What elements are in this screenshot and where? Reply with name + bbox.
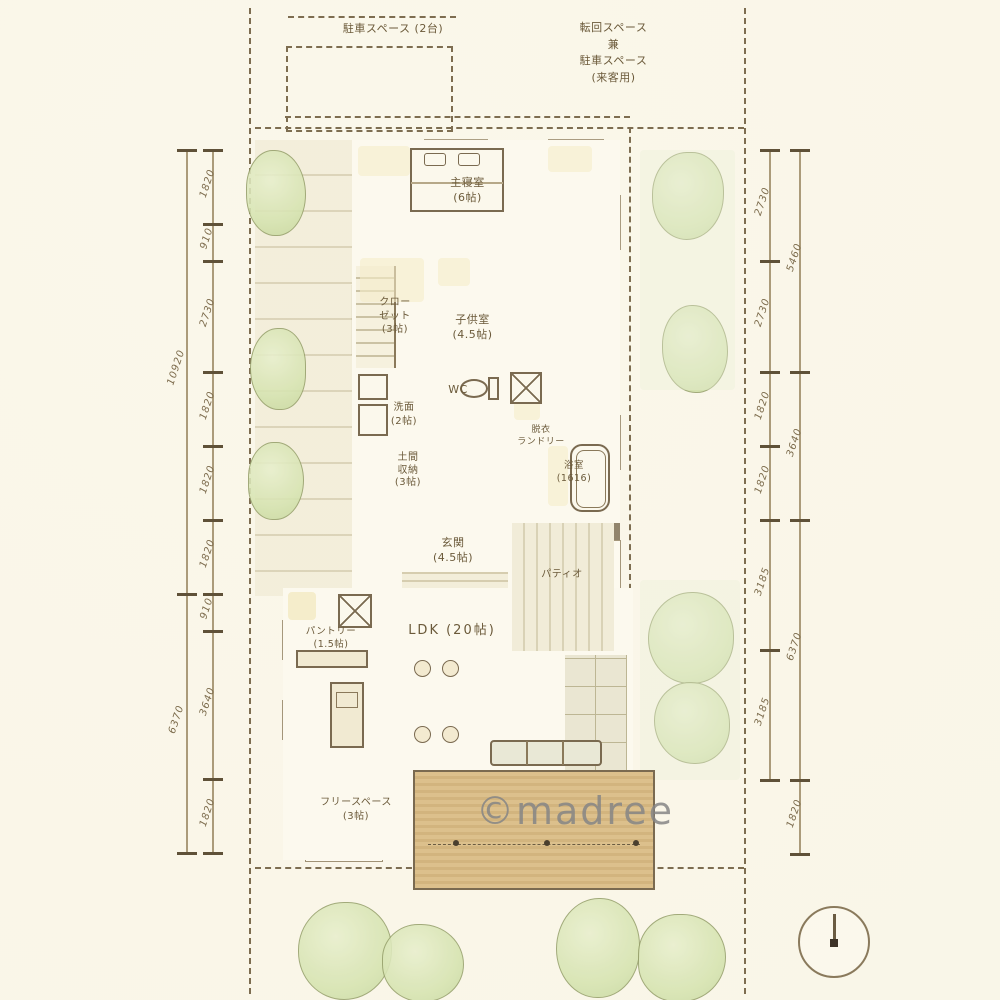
dim-tick [760, 445, 780, 448]
dim-tick [203, 445, 223, 448]
chair [442, 726, 459, 743]
chair [414, 726, 431, 743]
dim-label: 1820 [198, 538, 218, 569]
site-boundary-right [744, 8, 746, 994]
dim-label: 1820 [198, 168, 218, 199]
wash [438, 258, 470, 286]
dim-label: 2730 [198, 297, 218, 328]
dim-tick [760, 371, 780, 374]
pillow [458, 153, 480, 166]
deck-post-dot [453, 840, 459, 846]
washing-machine [510, 372, 542, 404]
dim-label-total: 6370 [785, 631, 805, 662]
dim-tick [760, 149, 780, 152]
dim-tick [203, 260, 223, 263]
turnaround-label: 転回スペース 兼 駐車スペース (来客用) [556, 20, 671, 86]
dim-tick [760, 779, 780, 782]
pantry-shelf [338, 594, 372, 628]
garden-wash-right-lower [640, 580, 740, 780]
dim-tick [790, 779, 810, 782]
wash [548, 146, 592, 172]
compass-icon [798, 906, 870, 978]
site-boundary-top [288, 16, 456, 18]
entrance-step [402, 572, 508, 588]
deck-post-dot [633, 840, 639, 846]
room-label-washroom: 洗面 (2帖) [376, 401, 432, 428]
dim-label-total: 5460 [785, 242, 805, 273]
dim-label: 3640 [198, 686, 218, 717]
tree-icon [248, 442, 304, 520]
toilet-tank [488, 377, 499, 400]
wash [288, 592, 316, 620]
dim-label-total: 10920 [165, 348, 187, 386]
patio-decking [512, 523, 614, 651]
tree-icon [556, 898, 640, 998]
dim-tick [203, 519, 223, 522]
room-label-doma-storage: 土間 収納 (3帖) [378, 452, 438, 490]
chair [414, 660, 431, 677]
parking-space-outline [286, 46, 453, 132]
room-label-patio: パティオ [528, 568, 596, 582]
dim-tick [177, 852, 197, 855]
dim-tick [203, 371, 223, 374]
dim-tick [760, 649, 780, 652]
deck-post-dot [544, 840, 550, 846]
floor-plan-canvas: 1820 910 2730 1820 1820 1820 910 3640 18… [0, 0, 1000, 1000]
dim-label-total: 3640 [785, 427, 805, 458]
dim-tick [177, 149, 197, 152]
sofa-cushion-line [562, 741, 564, 765]
garden-wash-right-upper [640, 150, 735, 390]
chair [442, 660, 459, 677]
dim-tick [203, 630, 223, 633]
room-label-kids-room: 子供室 (4.5帖) [430, 313, 515, 343]
room-label-wc: WC [438, 383, 478, 398]
compass-center-dot [830, 939, 838, 947]
dim-label-total: 6370 [167, 704, 187, 735]
kitchen-sink [336, 692, 358, 708]
dim-tick [203, 778, 223, 781]
tree-icon [638, 914, 726, 1000]
watermark: ©madree [476, 789, 674, 833]
dim-line-left-totals [186, 150, 188, 853]
room-label-entrance: 玄関 (4.5帖) [420, 536, 486, 566]
dim-label-total: 1820 [785, 798, 805, 829]
room-label-ldk: LDK (20帖) [392, 622, 512, 640]
room-label-pantry: パントリー (1.5帖) [294, 626, 368, 652]
dim-tick [790, 371, 810, 374]
dim-line-left-segments [212, 150, 214, 853]
dim-tick [203, 852, 223, 855]
room-label-closet: クロー ゼット (3帖) [366, 296, 424, 337]
dim-tick [760, 260, 780, 263]
washbasin [358, 374, 388, 400]
tree-icon [250, 328, 306, 410]
deck-dashed-line [428, 844, 640, 845]
tree-icon [298, 902, 392, 1000]
sofa-cushion-line [526, 741, 528, 765]
dim-tick [177, 593, 197, 596]
dim-tick [790, 519, 810, 522]
compass-needle [833, 914, 836, 942]
room-label-bathroom: 浴室 (1616) [546, 460, 602, 486]
room-label-free-space: フリースペース (3帖) [300, 796, 412, 823]
dim-label: 1820 [198, 390, 218, 421]
dim-tick [790, 853, 810, 856]
dim-label: 1820 [198, 464, 218, 495]
dim-tick [203, 149, 223, 152]
tree-icon [382, 924, 464, 1000]
room-label-laundry: 脱衣 ランドリー [510, 424, 572, 448]
wash [358, 146, 410, 176]
pillow [424, 153, 446, 166]
dim-tick [760, 519, 780, 522]
tree-icon [246, 150, 306, 236]
dim-label: 1820 [198, 797, 218, 828]
parking-label: 駐車スペース (2台) [318, 22, 468, 37]
dim-line-right-segments [769, 150, 771, 780]
room-label-master-bedroom: 主寝室 (6帖) [420, 176, 515, 206]
sofa [490, 740, 602, 766]
kitchen-counter [296, 650, 368, 668]
dim-tick [790, 149, 810, 152]
